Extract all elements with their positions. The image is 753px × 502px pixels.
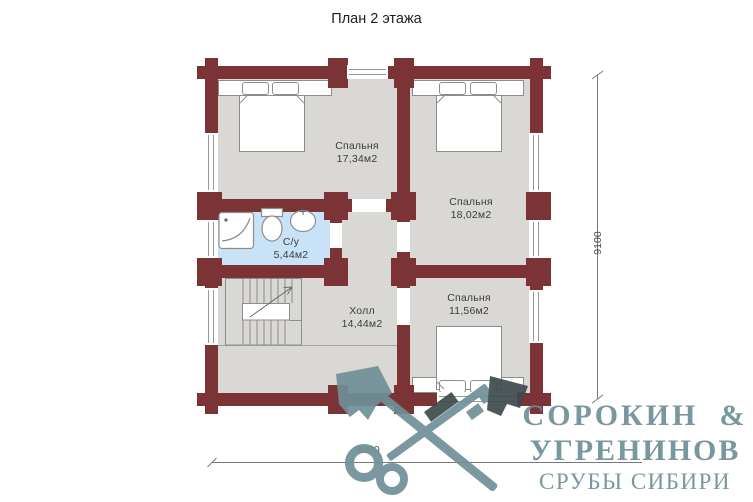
log-post	[328, 58, 348, 88]
window-glass	[533, 292, 539, 341]
bedroom2-pillow	[439, 82, 466, 95]
wall-bedroom2-bedroom3	[410, 265, 530, 278]
room-name: Спальня	[311, 140, 403, 153]
page-title: План 2 этажа	[0, 11, 753, 27]
log-post	[394, 385, 414, 414]
room-area: 17,34м2	[311, 153, 403, 166]
window-glass	[439, 396, 515, 402]
door-opening-bedroom2	[397, 222, 410, 252]
window-glass	[208, 290, 214, 343]
room-label-hall: Холл 14,44м2	[316, 305, 408, 331]
room-name: С/у	[245, 236, 337, 249]
room-label-bathroom: С/у 5,44м2	[245, 236, 337, 262]
stair-railing	[218, 345, 397, 346]
log-post	[526, 192, 551, 220]
log-post	[391, 192, 416, 220]
log-post	[526, 258, 551, 286]
window-bedroom1	[204, 133, 218, 192]
room-name: Спальня	[425, 196, 517, 209]
window-bedroom3	[529, 290, 543, 343]
window-glass	[208, 135, 214, 190]
window-bedroom3-bottom	[437, 392, 517, 406]
door-opening-bedroom1	[352, 199, 386, 212]
room-name: Холл	[316, 305, 408, 318]
room-name: Спальня	[423, 292, 515, 305]
watermark-line3: СРУБЫ СИБИРИ	[517, 469, 753, 495]
window-glass	[349, 69, 386, 75]
room-label-bedroom3: Спальня 11,56м2	[423, 292, 515, 318]
bedroom1-pillow	[242, 82, 269, 95]
window-glass	[208, 222, 214, 256]
bedroom1-pillow	[272, 82, 299, 95]
log-post	[197, 192, 222, 220]
window-bedroom2	[529, 133, 543, 192]
dimension-label-horizontal: 8900	[343, 444, 393, 456]
dimension-label-vertical: 9100	[592, 219, 604, 267]
bedroom2-bed	[436, 95, 502, 152]
wall-interior-vertical	[397, 325, 410, 393]
bedroom2-pillow	[470, 82, 497, 95]
room-area: 5,44м2	[245, 249, 337, 262]
log-post	[394, 58, 414, 88]
log-post	[391, 258, 416, 286]
watermark-line2: УГРЕНИНОВ	[517, 434, 753, 468]
window-top	[347, 65, 388, 79]
room-label-bedroom2: Спальня 18,02м2	[425, 196, 517, 222]
room-label-bedroom1: Спальня 17,34м2	[311, 140, 403, 166]
log-post	[197, 258, 222, 286]
log-post	[328, 385, 348, 414]
watermark-line1: СОРОКИН &	[517, 399, 753, 433]
floor-plan-page: { "title": "План 2 этажа", "rooms": { "b…	[0, 0, 753, 502]
window-bathroom	[204, 220, 218, 258]
window-bedroom2-south	[529, 220, 543, 258]
room-area: 11,56м2	[423, 305, 515, 318]
log-post	[324, 192, 348, 220]
window-glass	[533, 135, 539, 190]
bedroom2-wardrobe-strip	[412, 80, 524, 96]
window-hall	[204, 288, 218, 345]
bedroom1-bed	[239, 95, 305, 152]
room-area: 18,02м2	[425, 209, 517, 222]
window-glass	[533, 222, 539, 256]
room-area: 14,44м2	[316, 318, 408, 331]
